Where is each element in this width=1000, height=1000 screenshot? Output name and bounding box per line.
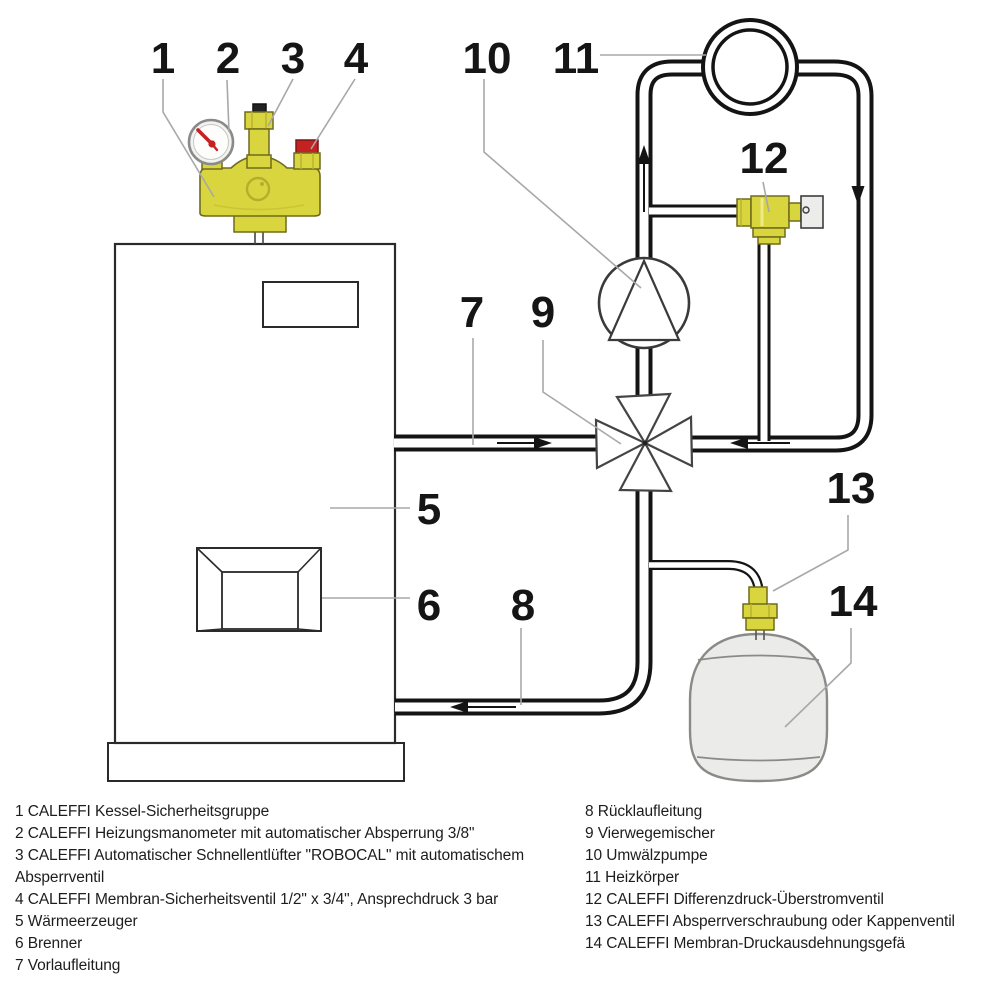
cap-valve (743, 587, 777, 640)
callout-10: 10 (463, 34, 512, 83)
legend-item: 4 CALEFFI Membran-Sicherheitsventil 1/2"… (15, 889, 580, 911)
air-vent (245, 104, 273, 168)
callout-6: 6 (417, 581, 441, 630)
expansion-vessel (690, 634, 827, 781)
boiler (108, 244, 404, 781)
control-panel (263, 282, 358, 327)
callout-2: 2 (216, 34, 240, 83)
callout-5: 5 (417, 485, 441, 534)
manometer (189, 120, 233, 169)
legend-item: 5 Wärmeerzeuger (15, 911, 580, 933)
legend-item: 12 CALEFFI Differenzdruck-Überstromventi… (585, 889, 995, 911)
legend-right-column: 8 Rücklaufleitung 9 Vierwegemischer 10 U… (585, 801, 995, 955)
pump (599, 258, 689, 348)
legend-item: Absperrventil (15, 867, 580, 889)
radiator (703, 20, 797, 114)
callout-3: 3 (281, 34, 305, 83)
legend-item: 13 CALEFFI Absperrverschraubung oder Kap… (585, 911, 995, 933)
four-way-mixer (596, 394, 692, 491)
callout-12: 12 (740, 134, 789, 183)
diagram-canvas: 1 2 3 4 10 11 12 7 9 5 6 8 13 14 (0, 0, 1000, 795)
expansion-vessel-branch-pipe (649, 565, 759, 596)
safety-group (189, 104, 320, 244)
leader-3 (268, 79, 293, 126)
overflow-valve (737, 196, 823, 244)
leader-4 (311, 79, 355, 149)
callout-8: 8 (511, 581, 535, 630)
legend-item: 8 Rücklaufleitung (585, 801, 995, 823)
boiler-base (108, 743, 404, 781)
legend-left-column: 1 CALEFFI Kessel-Sicherheitsgruppe 2 CAL… (15, 801, 580, 977)
legend-item: 9 Vierwegemischer (585, 823, 995, 845)
legend-item: 10 Umwälzpumpe (585, 845, 995, 867)
leader-10 (484, 79, 641, 288)
callout-9: 9 (531, 288, 555, 337)
safety-valve (294, 140, 320, 169)
callout-11: 11 (553, 34, 600, 83)
legend-item: 11 Heizkörper (585, 867, 995, 889)
leader-2 (227, 80, 229, 132)
legend-item: 3 CALEFFI Automatischer Schnellentlüfter… (15, 845, 580, 867)
callout-1: 1 (151, 34, 175, 83)
callout-7: 7 (460, 288, 484, 337)
legend-item: 2 CALEFFI Heizungsmanometer mit automati… (15, 823, 580, 845)
legend-item: 7 Vorlaufleitung (15, 955, 580, 977)
burner (197, 548, 321, 631)
legend-item: 1 CALEFFI Kessel-Sicherheitsgruppe (15, 801, 580, 823)
radiator-loop-pipe (644, 68, 865, 444)
legend-item: 6 Brenner (15, 933, 580, 955)
callout-13: 13 (827, 464, 876, 513)
callout-4: 4 (344, 34, 369, 83)
legend-item: 14 CALEFFI Membran-Druckausdehnungsgefä (585, 933, 995, 955)
callout-14: 14 (829, 577, 878, 626)
schematic-page: 1 2 3 4 10 11 12 7 9 5 6 8 13 14 1 CALEF… (0, 0, 1000, 1000)
